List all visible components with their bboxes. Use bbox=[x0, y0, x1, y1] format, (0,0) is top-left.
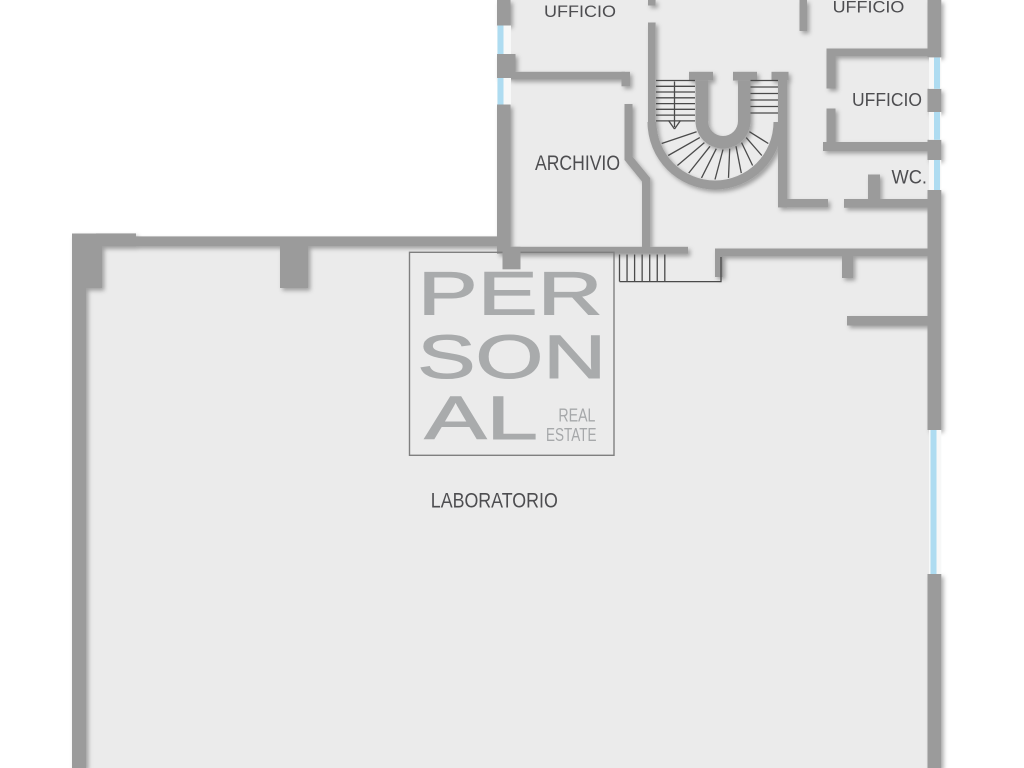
svg-text:WC.: WC. bbox=[892, 167, 928, 189]
svg-text:AL: AL bbox=[425, 384, 538, 452]
svg-text:UFFICIO: UFFICIO bbox=[852, 90, 922, 110]
svg-text:ESTATE: ESTATE bbox=[546, 424, 597, 445]
svg-text:UFFICIO: UFFICIO bbox=[833, 0, 905, 16]
svg-text:LABORATORIO: LABORATORIO bbox=[431, 489, 558, 513]
svg-text:REAL: REAL bbox=[558, 405, 595, 426]
svg-text:PER: PER bbox=[418, 260, 603, 328]
svg-text:ARCHIVIO: ARCHIVIO bbox=[535, 151, 620, 175]
svg-text:UFFICIO: UFFICIO bbox=[544, 2, 616, 21]
svg-text:SON: SON bbox=[417, 323, 606, 391]
